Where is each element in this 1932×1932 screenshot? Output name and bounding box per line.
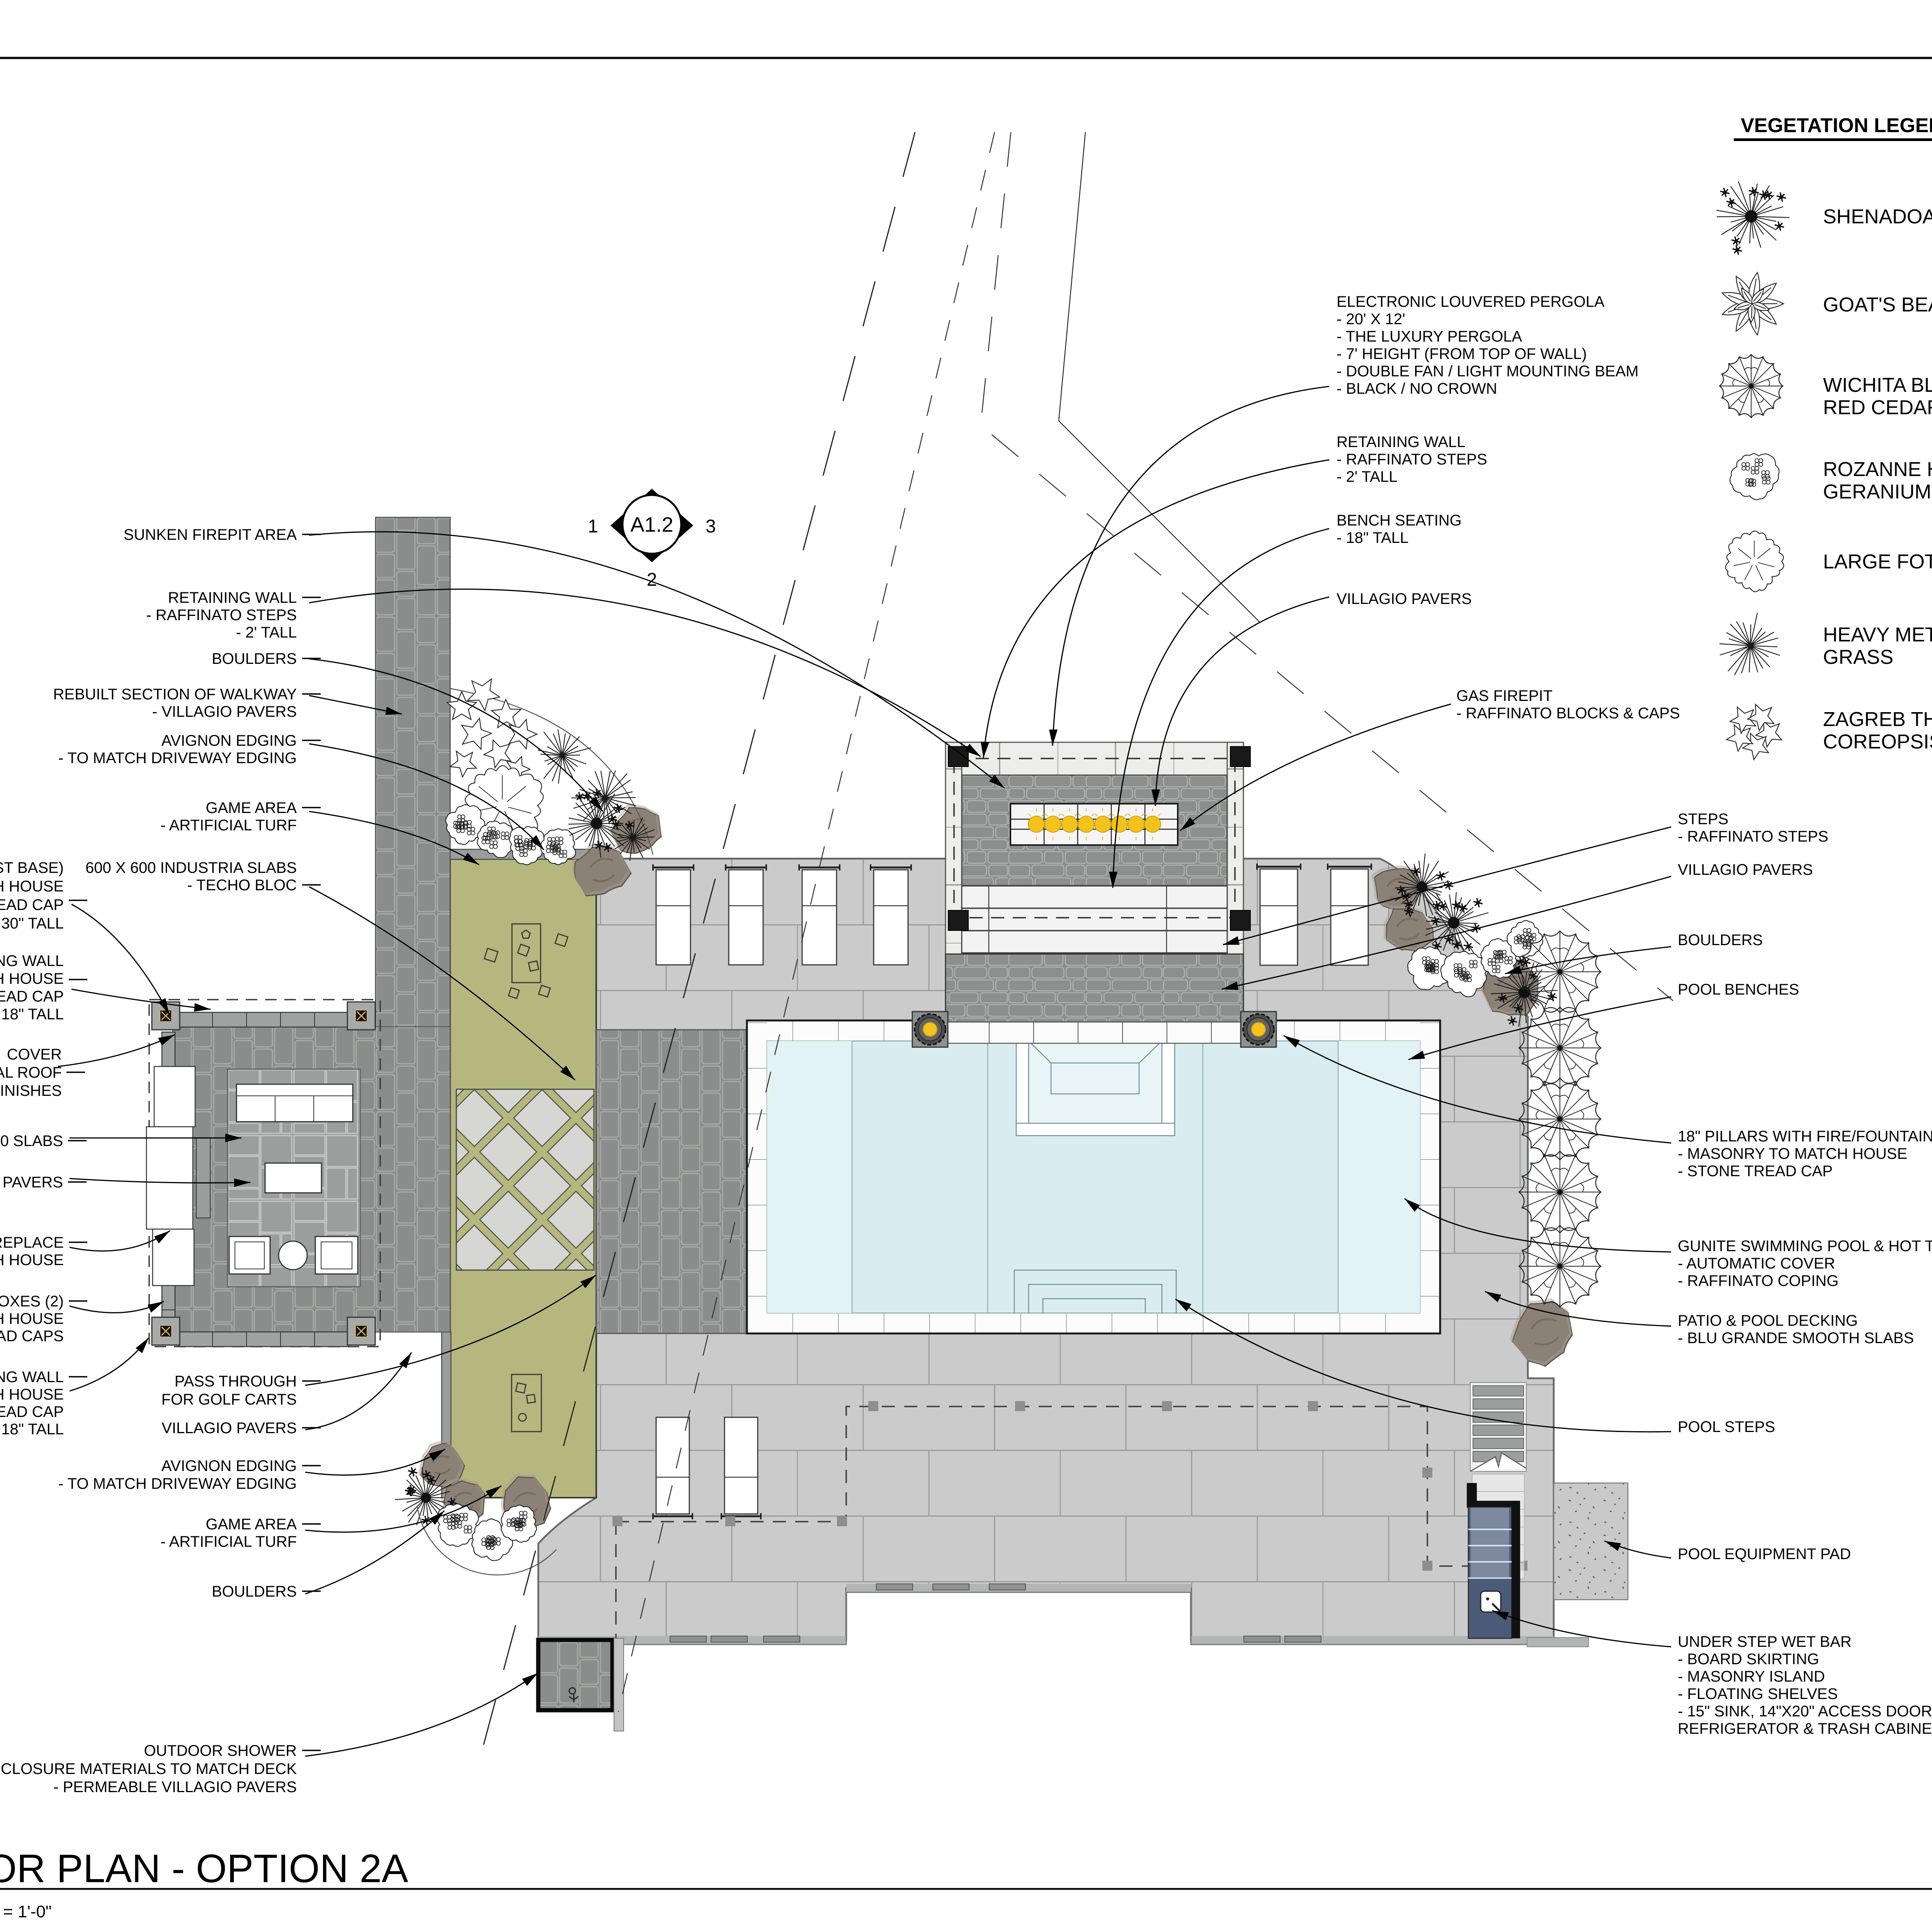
svg-text:VILLAGIO PAVERS: VILLAGIO PAVERS <box>162 1420 297 1437</box>
svg-text:- AUTOMATIC COVER: - AUTOMATIC COVER <box>1678 1255 1835 1272</box>
svg-text:AVIGNON EDGING: AVIGNON EDGING <box>162 1458 297 1475</box>
svg-text:CH HOUSE: CH HOUSE <box>0 1386 64 1403</box>
svg-text:VEGETATION LEGEND: VEGETATION LEGEND <box>1741 114 1932 137</box>
svg-text:- BLACK / NO CROWN: - BLACK / NO CROWN <box>1337 380 1497 397</box>
svg-text:GRASS: GRASS <box>1823 646 1893 668</box>
svg-text:18" PILLARS WITH FIRE/FOUNTAIN: 18" PILLARS WITH FIRE/FOUNTAIN BOWLS (2) <box>1678 1128 1932 1145</box>
svg-text:RETAINING WALL: RETAINING WALL <box>1337 434 1465 451</box>
svg-text:- RAFFINATO STEPS: - RAFFINATO STEPS <box>146 607 297 624</box>
svg-text:GAS FIREPIT: GAS FIREPIT <box>1456 687 1553 704</box>
svg-text:BOULDERS: BOULDERS <box>1678 932 1763 949</box>
svg-text:POOL BENCHES: POOL BENCHES <box>1678 981 1799 998</box>
svg-text:- MASONRY ISLAND: - MASONRY ISLAND <box>1678 1668 1825 1685</box>
svg-text:ROZANNE HYBRID: ROZANNE HYBRID <box>1823 458 1932 481</box>
svg-text:- 20' X 12': - 20' X 12' <box>1337 311 1405 328</box>
svg-text:- RAFFINATO BLOCKS & CAPS: - RAFFINATO BLOCKS & CAPS <box>1456 705 1680 722</box>
svg-text:- RAFFINATO STEPS: - RAFFINATO STEPS <box>1337 451 1487 468</box>
svg-text:ZAGREB THREADLEAF: ZAGREB THREADLEAF <box>1823 708 1932 731</box>
svg-text:COREOPSIS: COREOPSIS <box>1823 731 1932 753</box>
svg-text:- 18" TALL: - 18" TALL <box>0 1421 64 1438</box>
svg-text:PAVERS: PAVERS <box>3 1174 63 1191</box>
svg-text:ING WALL: ING WALL <box>0 1369 64 1386</box>
svg-text:3: 3 <box>706 516 716 537</box>
svg-text:NG WALL: NG WALL <box>0 952 64 969</box>
svg-text:READ CAP: READ CAP <box>0 1403 64 1420</box>
svg-text:- TO MATCH DRIVEWAY EDGING: - TO MATCH DRIVEWAY EDGING <box>58 1475 297 1492</box>
svg-text:600 X 600 INDUSTRIA SLABS: 600 X 600 INDUSTRIA SLABS <box>85 859 297 876</box>
svg-text:GOAT'S BEARD: GOAT'S BEARD <box>1823 294 1932 316</box>
svg-text:EAD CAP: EAD CAP <box>0 896 64 913</box>
svg-text:GAME AREA: GAME AREA <box>206 1516 297 1533</box>
svg-text:GUNITE SWIMMING POOL & HOT TUB: GUNITE SWIMMING POOL & HOT TUB <box>1678 1238 1932 1255</box>
svg-text:BOXES (2): BOXES (2) <box>0 1293 64 1310</box>
svg-text:A1.2: A1.2 <box>630 513 673 536</box>
svg-text:- VILLAGIO PAVERS: - VILLAGIO PAVERS <box>152 703 297 720</box>
svg-text:- 2' TALL: - 2' TALL <box>236 624 297 641</box>
svg-text:- TO MATCH DRIVEWAY EDGING: - TO MATCH DRIVEWAY EDGING <box>58 750 297 767</box>
svg-text:BENCH SEATING: BENCH SEATING <box>1337 512 1462 529</box>
svg-text:STEPS: STEPS <box>1678 811 1728 828</box>
svg-text:COVER: COVER <box>7 1046 62 1063</box>
svg-text:- 2' TALL: - 2' TALL <box>1337 468 1397 485</box>
svg-text:RETAINING WALL: RETAINING WALL <box>168 589 297 606</box>
svg-text:ST BASE): ST BASE) <box>0 859 64 876</box>
svg-text:- RAFFINATO STEPS: - RAFFINATO STEPS <box>1678 828 1828 845</box>
svg-text:REBUILT SECTION OF WALKWAY: REBUILT SECTION OF WALKWAY <box>53 686 297 703</box>
svg-text:- MASONRY TO MATCH HOUSE: - MASONRY TO MATCH HOUSE <box>1678 1145 1907 1162</box>
svg-text:RED CEDAR: RED CEDAR <box>1823 396 1932 419</box>
svg-text:IREPLACE: IREPLACE <box>0 1234 64 1251</box>
svg-text:18" TALL: 18" TALL <box>1 1006 64 1023</box>
svg-text:- STONE TREAD CAP: - STONE TREAD CAP <box>1678 1163 1833 1180</box>
svg-text:- ARTIFICIAL TURF: - ARTIFICIAL TURF <box>160 1533 297 1550</box>
svg-text:WICHITA BLUE COLORADO: WICHITA BLUE COLORADO <box>1823 374 1932 396</box>
svg-text:BOULDERS: BOULDERS <box>212 650 297 667</box>
svg-text:CH HOUSE: CH HOUSE <box>0 1252 64 1269</box>
svg-text:EAD CAP: EAD CAP <box>0 988 64 1005</box>
svg-text:AVIGNON EDGING: AVIGNON EDGING <box>162 732 297 749</box>
svg-text:AL ROOF: AL ROOF <box>0 1064 62 1081</box>
svg-text:H HOUSE: H HOUSE <box>0 878 64 895</box>
svg-text:BOULDERS: BOULDERS <box>212 1583 297 1600</box>
svg-text:- ARTIFICIAL TURF: - ARTIFICIAL TURF <box>160 817 297 834</box>
svg-text:VILLAGIO PAVERS: VILLAGIO PAVERS <box>1678 861 1813 878</box>
svg-text:- BLU GRANDE SMOOTH SLABS: - BLU GRANDE SMOOTH SLABS <box>1678 1330 1914 1347</box>
svg-text:- FLOATING SHELVES: - FLOATING SHELVES <box>1678 1685 1838 1702</box>
svg-text:HEAVY METAL SWITCH: HEAVY METAL SWITCH <box>1823 624 1932 646</box>
svg-text:LARGE FOTHERGILLA: LARGE FOTHERGILLA <box>1823 551 1932 573</box>
svg-text:FINISHES: FINISHES <box>0 1082 62 1099</box>
svg-text:0 SLABS: 0 SLABS <box>0 1133 63 1150</box>
svg-text:- 7' HEIGHT (FROM TOP OF WALL): - 7' HEIGHT (FROM TOP OF WALL) <box>1337 345 1587 362</box>
svg-text:- BOARD SKIRTING: - BOARD SKIRTING <box>1678 1651 1819 1668</box>
svg-text:SUNKEN FIREPIT AREA: SUNKEN FIREPIT AREA <box>124 526 297 543</box>
svg-text:- RAFFINATO COPING: - RAFFINATO COPING <box>1678 1272 1838 1289</box>
svg-text:GERANIUM: GERANIUM <box>1823 481 1931 503</box>
svg-text:30" TALL: 30" TALL <box>1 915 64 932</box>
svg-text:- ENCLOSURE MATERIALS TO MATCH: - ENCLOSURE MATERIALS TO MATCH DECK <box>0 1760 297 1777</box>
svg-text:SHENADOAH SWITCH GRASS: SHENADOAH SWITCH GRASS <box>1823 206 1932 228</box>
svg-text:- DOUBLE FAN / LIGHT MOUNTING: - DOUBLE FAN / LIGHT MOUNTING BEAM <box>1337 363 1639 380</box>
svg-text:CH HOUSE: CH HOUSE <box>0 1310 64 1327</box>
svg-text:H HOUSE: H HOUSE <box>0 970 64 987</box>
svg-text:PASS THROUGH: PASS THROUGH <box>175 1373 297 1390</box>
svg-text:- TECHO BLOC: - TECHO BLOC <box>187 877 297 894</box>
svg-text:EAD CAPS: EAD CAPS <box>0 1328 64 1345</box>
svg-text:- 18" TALL: - 18" TALL <box>1337 529 1408 546</box>
svg-text:FOR GOLF CARTS: FOR GOLF CARTS <box>162 1391 297 1408</box>
svg-text:POOL STEPS: POOL STEPS <box>1678 1418 1775 1435</box>
svg-text:FLOOR PLAN - OPTION 2A: FLOOR PLAN - OPTION 2A <box>0 1846 408 1891</box>
svg-text:1: 1 <box>588 516 598 537</box>
svg-text:ELECTRONIC LOUVERED PERGOLA: ELECTRONIC LOUVERED PERGOLA <box>1337 293 1605 310</box>
svg-text:GAME AREA: GAME AREA <box>206 799 297 816</box>
svg-text:POOL EQUIPMENT PAD: POOL EQUIPMENT PAD <box>1678 1546 1851 1563</box>
svg-text:PATIO & POOL DECKING: PATIO & POOL DECKING <box>1678 1312 1858 1329</box>
svg-text:VILLAGIO PAVERS: VILLAGIO PAVERS <box>1337 590 1472 607</box>
svg-text:REFRIGERATOR & TRASH CABINET: REFRIGERATOR & TRASH CABINET <box>1678 1720 1932 1737</box>
svg-text:= 1'-0": = 1'-0" <box>3 1902 52 1921</box>
svg-text:- THE LUXURY PERGOLA: - THE LUXURY PERGOLA <box>1337 328 1522 345</box>
svg-text:OUTDOOR SHOWER: OUTDOOR SHOWER <box>144 1742 297 1759</box>
svg-text:- 15" SINK, 14"X20" ACCESS DOO: - 15" SINK, 14"X20" ACCESS DOOR, <box>1678 1703 1932 1720</box>
svg-text:UNDER STEP WET BAR: UNDER STEP WET BAR <box>1678 1633 1852 1650</box>
svg-text:- PERMEABLE VILLAGIO PAVERS: - PERMEABLE VILLAGIO PAVERS <box>53 1779 297 1796</box>
